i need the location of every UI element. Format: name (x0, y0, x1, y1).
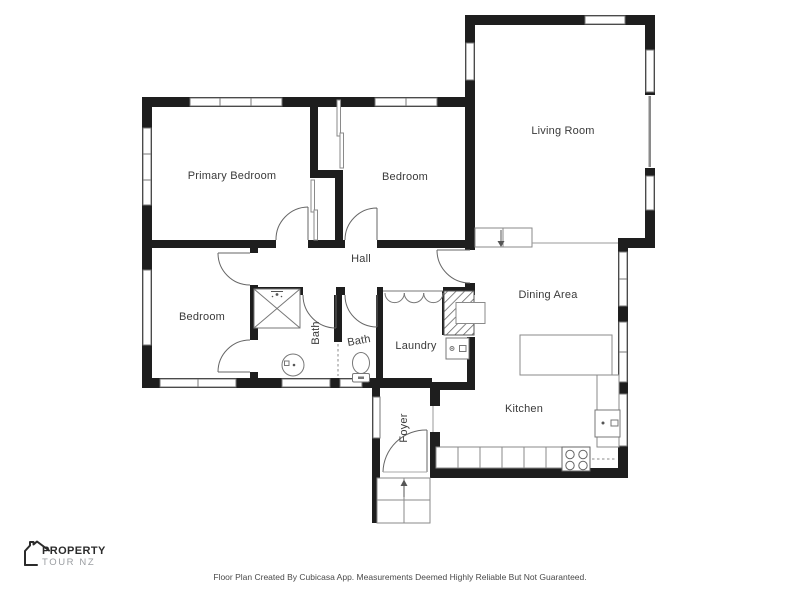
footer-disclaimer: Floor Plan Created By Cubicasa App. Meas… (0, 572, 800, 582)
room-label-foyer: Foyer (398, 413, 410, 442)
room-label-bedroom-top: Bedroom (382, 171, 428, 183)
room-label-dining-area: Dining Area (518, 289, 577, 301)
sliding-door-icon (649, 96, 652, 167)
floor-plan-drawing (0, 0, 800, 600)
room-label-kitchen: Kitchen (505, 403, 543, 415)
washing-machine-icon (446, 338, 469, 359)
shower-icon (254, 289, 300, 328)
step-down-marker (475, 228, 618, 247)
room-label-laundry: Laundry (395, 340, 436, 352)
kitchen-sink-icon (595, 410, 620, 437)
accordion-doors-icon (383, 291, 443, 303)
room-label-living-room: Living Room (531, 125, 594, 137)
room-label-primary-bedroom: Primary Bedroom (188, 170, 277, 182)
hot-water-cupboard-icon (444, 291, 485, 335)
property-tour-nz-logo: PROPERTY TOUR NZ (22, 540, 106, 568)
floor-plan-page: Primary Bedroom Bedroom Living Room Hall… (0, 0, 800, 600)
pedestal-sink-icon (282, 354, 304, 376)
room-label-bedroom-left: Bedroom (179, 311, 225, 323)
room-label-hall: Hall (351, 253, 371, 265)
room-label-bath-main: Bath (310, 321, 322, 344)
toilet-icon (353, 353, 370, 383)
stove-cooktop-icon (562, 447, 590, 471)
logo-text-line2: TOUR NZ (42, 558, 106, 568)
